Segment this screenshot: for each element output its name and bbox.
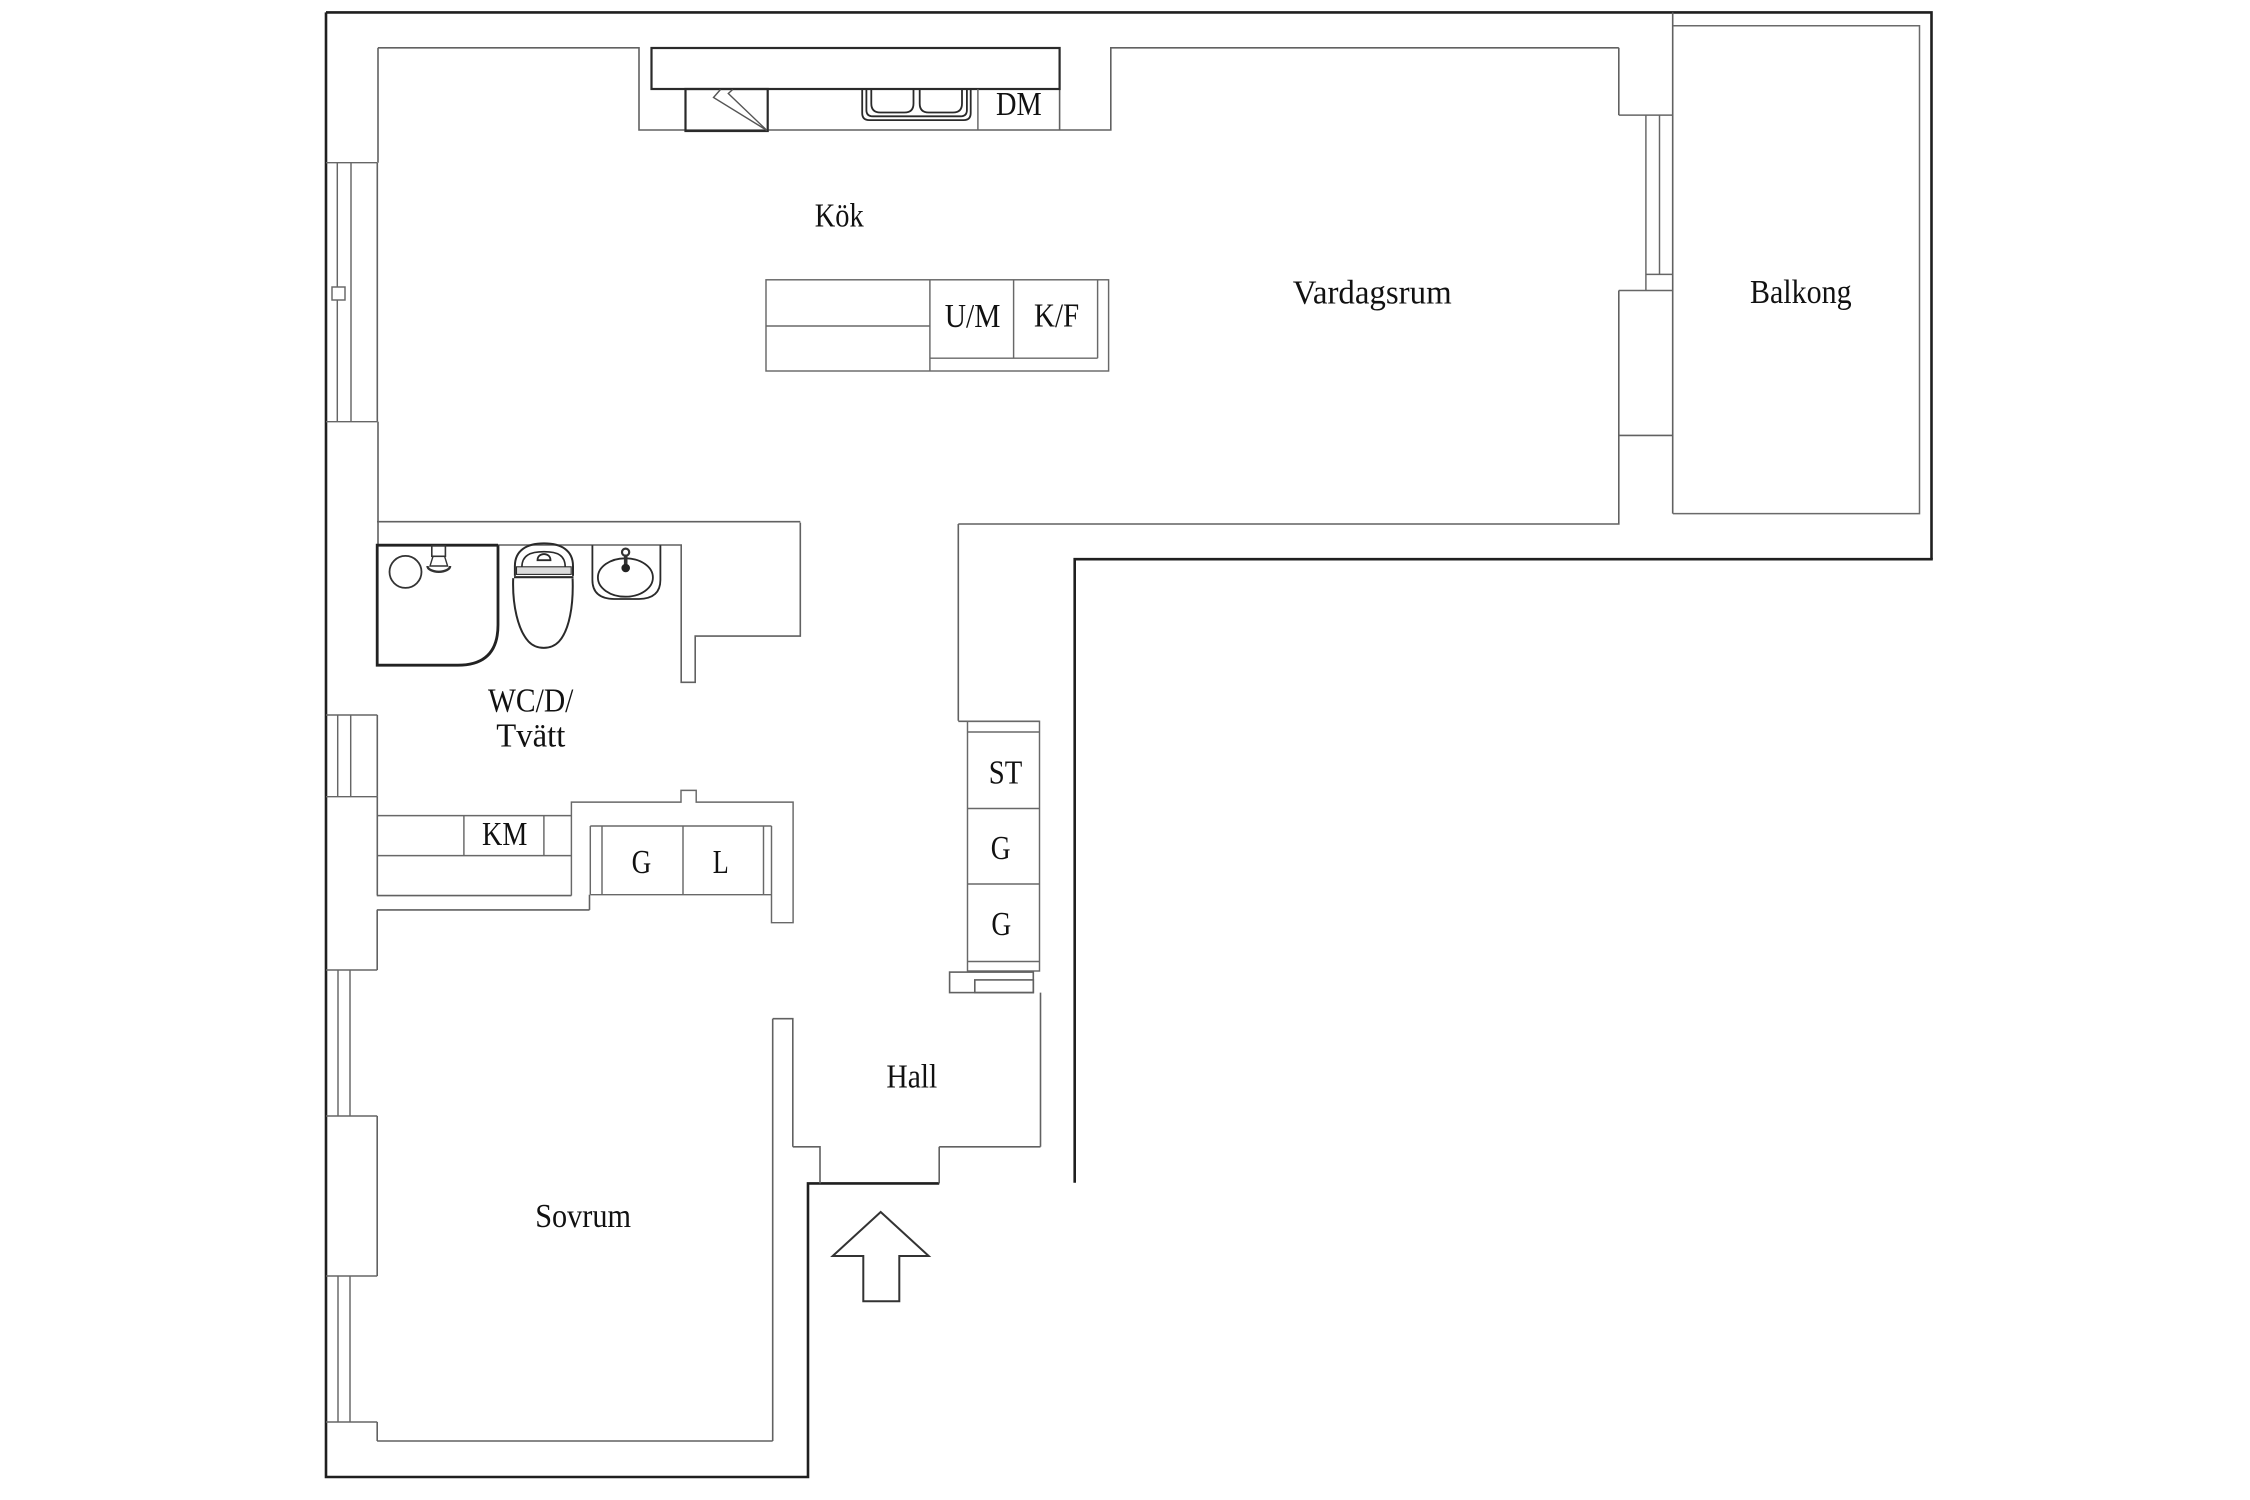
svg-text:Kök: Kök	[815, 198, 864, 235]
svg-text:WC/D/: WC/D/	[488, 683, 574, 720]
svg-text:Vardagsrum: Vardagsrum	[1293, 274, 1452, 311]
svg-text:KM: KM	[482, 816, 527, 853]
svg-text:G: G	[632, 844, 652, 881]
svg-text:ST: ST	[989, 754, 1023, 791]
svg-text:Hall: Hall	[886, 1059, 937, 1096]
svg-text:L: L	[713, 844, 729, 881]
svg-text:G: G	[991, 830, 1011, 867]
svg-text:G: G	[991, 906, 1011, 943]
svg-text:DM: DM	[996, 86, 1042, 123]
svg-text:Tvätt: Tvätt	[496, 718, 566, 755]
svg-text:Sovrum: Sovrum	[535, 1198, 631, 1235]
svg-text:K/F: K/F	[1034, 297, 1079, 334]
svg-text:U/M: U/M	[945, 298, 1001, 335]
svg-text:Balkong: Balkong	[1750, 274, 1852, 311]
